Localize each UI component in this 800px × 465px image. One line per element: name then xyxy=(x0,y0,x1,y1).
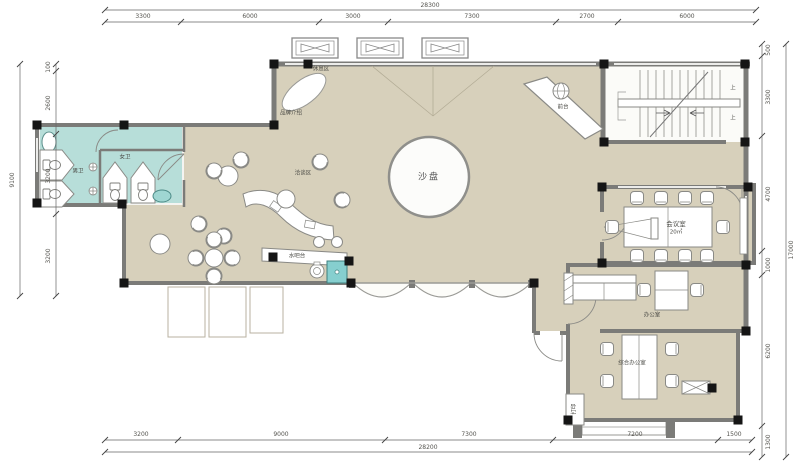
sideboard xyxy=(740,198,747,254)
office-desk xyxy=(655,271,688,310)
floor-plan-drawing xyxy=(0,0,800,465)
toilet-icon xyxy=(43,189,61,199)
basin-icon xyxy=(153,190,171,202)
toilet-icon xyxy=(43,160,61,170)
sofa-icon xyxy=(564,273,636,304)
armchair-icon xyxy=(206,268,222,284)
armchair-icon xyxy=(188,250,204,266)
round-table xyxy=(205,249,223,267)
bar-stool xyxy=(314,237,325,248)
round-table xyxy=(277,190,295,208)
exhaust-fan-icon xyxy=(89,187,97,195)
sand-table xyxy=(389,137,469,217)
basin-icon xyxy=(42,132,56,152)
window-unit-icon xyxy=(357,38,403,58)
bay-windows xyxy=(353,283,531,297)
round-table xyxy=(150,234,170,254)
outdoor-planters xyxy=(168,287,283,337)
cabinet-icon xyxy=(682,381,710,394)
office-table xyxy=(622,335,657,399)
window-unit-icon xyxy=(292,38,338,58)
projection-screen xyxy=(651,218,658,239)
window-unit-icon xyxy=(422,38,468,58)
toilet-icon xyxy=(110,183,120,201)
floor-plan-page: 沙盘 前台 休息区 品牌介绍 洽谈区 水吧台 男卫 女卫 会议室 20㎡ 办公室… xyxy=(0,0,800,465)
toilet-icon xyxy=(138,183,148,201)
window-units xyxy=(292,38,468,58)
armchair-icon xyxy=(224,250,240,266)
armchair-icon xyxy=(206,232,222,248)
bar-stool xyxy=(332,237,343,248)
globe-icon xyxy=(553,83,569,99)
exhaust-fan-icon xyxy=(89,163,97,171)
